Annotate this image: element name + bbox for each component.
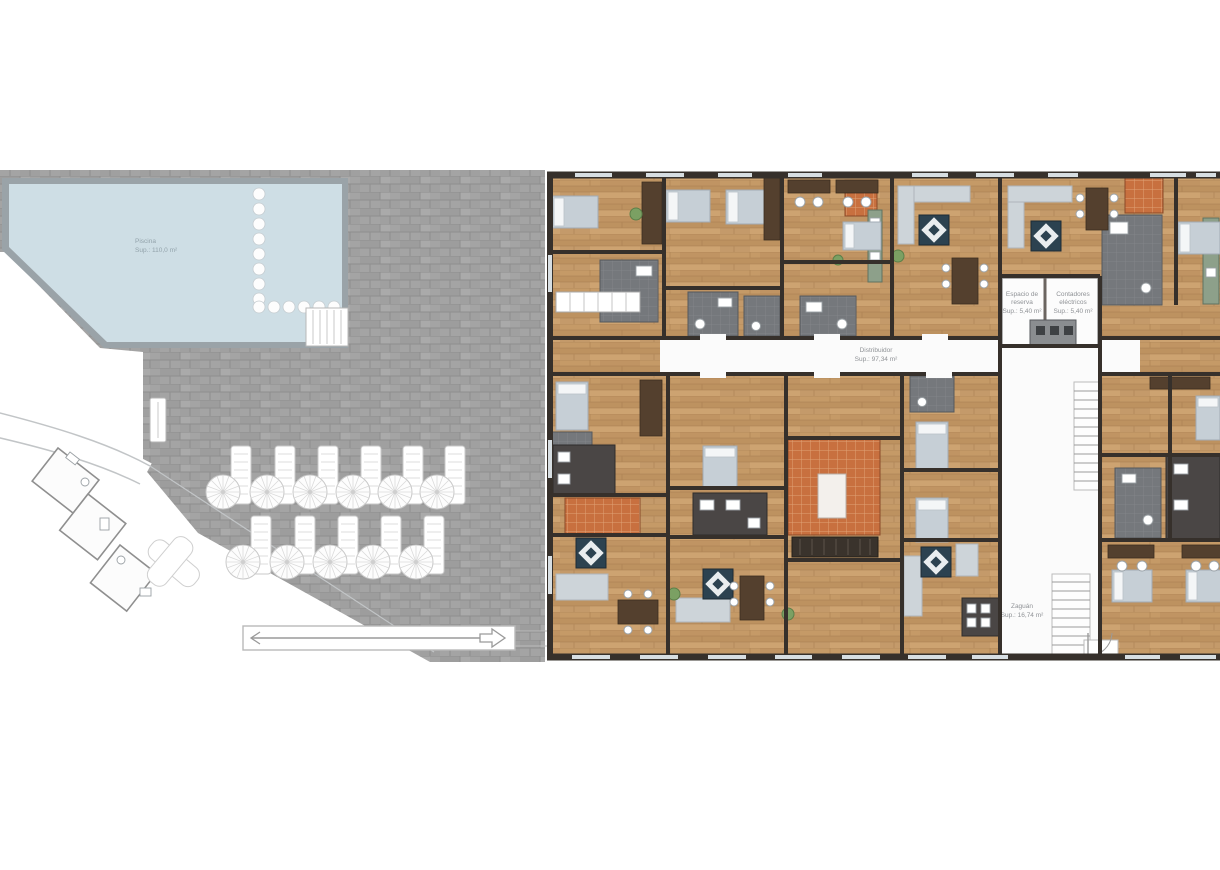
contadores-label-2: eléctricos bbox=[1059, 299, 1087, 306]
staircase-upper bbox=[1074, 382, 1100, 490]
pool-water bbox=[9, 184, 342, 342]
zaguan-label-2: Sup.: 16,74 m² bbox=[1001, 612, 1044, 619]
espacio-label-3: Sup.: 5,40 m² bbox=[1002, 308, 1042, 315]
pool-label-area: Sup.: 110,0 m² bbox=[135, 247, 178, 254]
patio-table bbox=[818, 474, 846, 518]
utility-rooms: Espacio de reserva Sup.: 5,40 m² Contado… bbox=[1002, 278, 1098, 346]
pool: Piscina Sup.: 110,0 m² bbox=[2, 178, 348, 348]
floor-plan-page: Piscina Sup.: 110,0 m² bbox=[0, 0, 1220, 870]
floor-plan-drawing: Piscina Sup.: 110,0 m² bbox=[0, 0, 1220, 870]
closet-band bbox=[556, 292, 640, 312]
zaguan-label-1: Zaguán bbox=[1011, 603, 1033, 610]
pool-label-name: Piscina bbox=[135, 238, 156, 245]
espacio-label-2: reserva bbox=[1011, 299, 1033, 306]
distribuidor-label-1: Distribuidor bbox=[860, 347, 894, 354]
fountain-shape bbox=[144, 533, 203, 590]
outdoor-terrace: Piscina Sup.: 110,0 m² bbox=[0, 170, 547, 662]
espacio-label-1: Espacio de bbox=[1006, 291, 1039, 298]
bench bbox=[150, 398, 166, 442]
access-arrow-bar bbox=[243, 626, 547, 650]
contadores-label-1: Contadores bbox=[1056, 291, 1090, 298]
distribuidor-label-2: Sup.: 97,34 m² bbox=[855, 356, 898, 363]
pool-steps bbox=[306, 308, 348, 346]
contadores-label-3: Sup.: 5,40 m² bbox=[1053, 308, 1093, 315]
building: Espacio de reserva Sup.: 5,40 m² Contado… bbox=[547, 172, 1220, 660]
